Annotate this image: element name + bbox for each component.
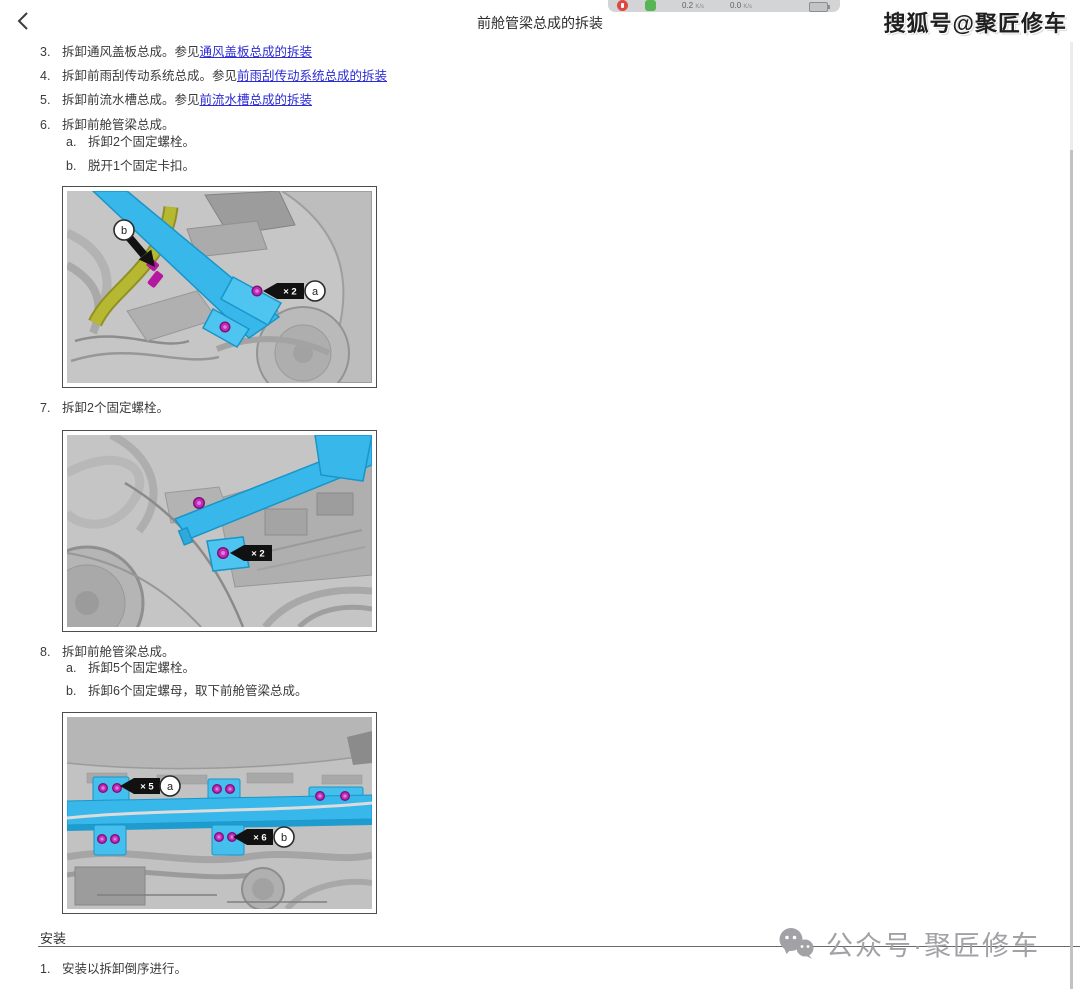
step-6: 6. 拆卸前舱管梁总成。 <box>40 118 175 133</box>
install-step-1: 1. 安装以拆卸倒序进行。 <box>40 962 187 977</box>
step-8a: a. 拆卸5个固定螺栓。 <box>66 661 195 676</box>
bolt <box>212 784 222 794</box>
wechat-watermark-label: 公众号·聚匠修车 <box>826 924 1040 963</box>
bolt <box>315 791 325 801</box>
step-6b: b. 脱开1个固定卡扣。 <box>66 159 195 174</box>
bolt <box>214 832 224 842</box>
record-status-icon <box>617 0 628 11</box>
bolt <box>340 791 350 801</box>
step-8b: b. 拆卸6个固定螺母，取下前舱管梁总成。 <box>66 684 307 699</box>
step-5: 5. 拆卸前流水槽总成。参见前流水槽总成的拆装 <box>40 93 312 108</box>
floating-toolbar[interactable]: 0.2 K/s 0.0 K/s <box>608 0 840 12</box>
bolt <box>217 547 229 559</box>
bolt <box>97 834 107 844</box>
app-badge-icon <box>645 0 656 11</box>
bolt <box>110 834 120 844</box>
scrollbar-thumb[interactable] <box>1070 150 1073 989</box>
svg-text:b: b <box>281 832 287 844</box>
bolt <box>252 286 263 297</box>
svg-text:× 6: × 6 <box>253 833 266 844</box>
figure-step8: × 5 a × 6 b <box>62 712 377 914</box>
wechat-watermark: 公众号·聚匠修车 <box>778 924 1040 963</box>
link-vent-cover[interactable]: 通风盖板总成的拆装 <box>200 45 313 60</box>
figure-step7: × 2 <box>62 430 377 632</box>
step-6a: a. 拆卸2个固定螺栓。 <box>66 135 195 150</box>
step-7: 7. 拆卸2个固定螺栓。 <box>40 401 169 416</box>
figure-step6: b × 2 a <box>62 186 377 388</box>
install-section-heading: 安装 <box>40 928 66 947</box>
step-4: 4. 拆卸前雨刮传动系统总成。参见前雨刮传动系统总成的拆装 <box>40 69 387 84</box>
bolt <box>193 497 205 509</box>
link-water-trough[interactable]: 前流水槽总成的拆装 <box>200 93 313 108</box>
svg-text:× 2: × 2 <box>251 549 264 560</box>
link-wiper-system[interactable]: 前雨刮传动系统总成的拆装 <box>237 69 387 84</box>
download-speed: 0.2 K/s <box>682 1 704 10</box>
wechat-icon <box>778 927 816 960</box>
battery-icon <box>809 2 828 12</box>
svg-text:× 2: × 2 <box>283 287 296 298</box>
bolt <box>98 783 108 793</box>
bolt <box>220 322 231 333</box>
svg-text:a: a <box>312 286 319 298</box>
svg-text:× 5: × 5 <box>140 782 154 793</box>
step-3: 3. 拆卸通风盖板总成。参见通风盖板总成的拆装 <box>40 45 312 60</box>
svg-text:a: a <box>167 781 174 793</box>
svg-text:b: b <box>121 225 127 237</box>
upload-speed: 0.0 K/s <box>730 1 752 10</box>
manual-page: 前舱管梁总成的拆装 0.2 K/s 0.0 K/s 搜狐号@聚匠修车 3. 拆卸… <box>0 0 1080 989</box>
bolt <box>112 783 122 793</box>
step-8: 8. 拆卸前舱管梁总成。 <box>40 645 175 660</box>
sohu-watermark: 搜狐号@聚匠修车 <box>884 6 1067 38</box>
bolt <box>225 784 235 794</box>
